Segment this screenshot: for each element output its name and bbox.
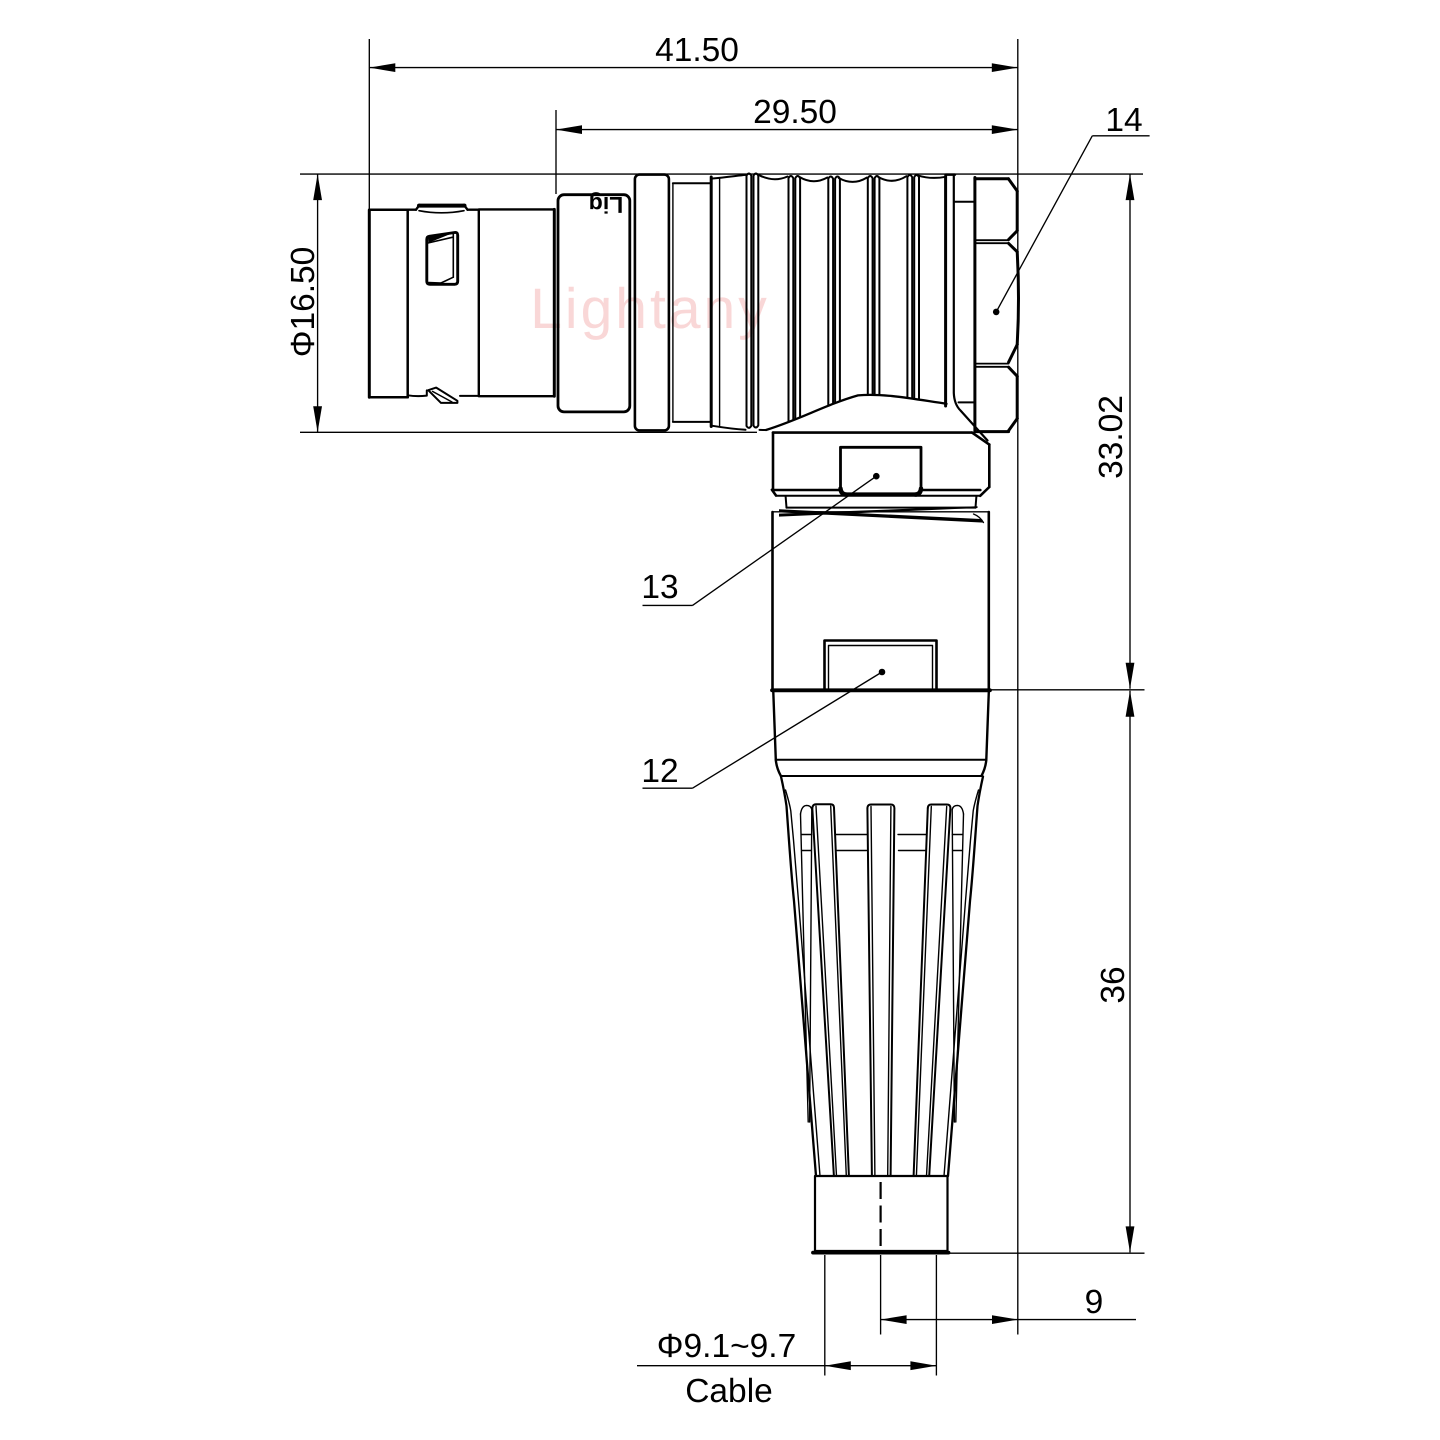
svg-text:Φ16.50: Φ16.50 xyxy=(285,247,322,358)
svg-text:9: 9 xyxy=(1085,1284,1104,1321)
svg-text:41.50: 41.50 xyxy=(655,32,739,69)
svg-text:33.02: 33.02 xyxy=(1093,395,1130,479)
svg-text:14: 14 xyxy=(1105,102,1142,139)
svg-text:12: 12 xyxy=(641,753,678,790)
svg-text:29.50: 29.50 xyxy=(753,94,837,131)
svg-text:Φ9.1~9.7: Φ9.1~9.7 xyxy=(657,1328,796,1365)
svg-text:13: 13 xyxy=(641,569,678,606)
svg-text:Lightany: Lightany xyxy=(530,277,770,341)
svg-text:Cable: Cable xyxy=(685,1373,773,1410)
svg-text:36: 36 xyxy=(1095,966,1132,1003)
